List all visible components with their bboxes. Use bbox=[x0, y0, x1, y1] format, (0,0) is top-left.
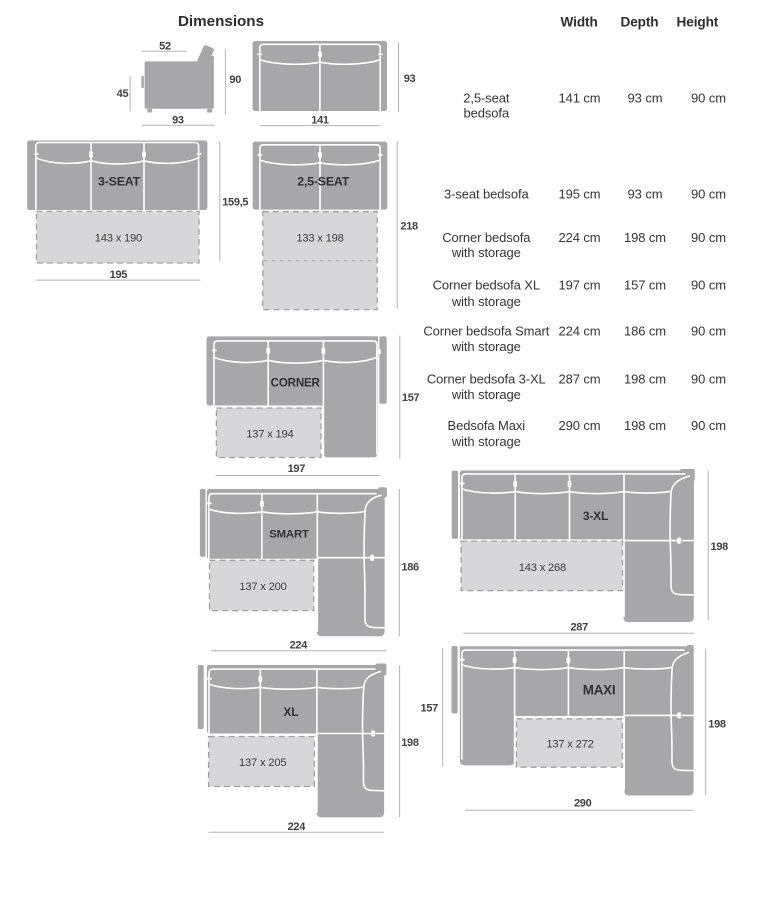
svg-text:290: 290 bbox=[574, 798, 592, 810]
svg-text:90 cm: 90 cm bbox=[691, 230, 726, 245]
svg-text:2,5-SEAT: 2,5-SEAT bbox=[297, 175, 350, 189]
svg-text:90 cm: 90 cm bbox=[691, 323, 726, 338]
svg-text:45: 45 bbox=[117, 88, 129, 100]
svg-text:CORNER: CORNER bbox=[271, 377, 321, 390]
svg-text:93 cm: 93 cm bbox=[628, 187, 663, 202]
svg-text:Bedsofa Maxi: Bedsofa Maxi bbox=[448, 418, 526, 433]
svg-text:Height: Height bbox=[677, 15, 719, 30]
svg-text:3-XL: 3-XL bbox=[583, 509, 608, 523]
svg-text:198 cm: 198 cm bbox=[624, 418, 666, 433]
svg-text:93 cm: 93 cm bbox=[628, 91, 663, 106]
svg-text:141 cm: 141 cm bbox=[558, 91, 600, 106]
svg-text:bedsofa: bedsofa bbox=[464, 106, 510, 121]
svg-text:198: 198 bbox=[708, 719, 726, 731]
svg-text:195 cm: 195 cm bbox=[558, 187, 600, 202]
svg-text:Corner bedsofa XL: Corner bedsofa XL bbox=[433, 278, 540, 293]
svg-text:224: 224 bbox=[290, 639, 309, 651]
svg-text:218: 218 bbox=[400, 220, 418, 232]
svg-text:with storage: with storage bbox=[451, 339, 521, 354]
svg-text:3-seat bedsofa: 3-seat bedsofa bbox=[444, 187, 529, 202]
svg-text:195: 195 bbox=[110, 269, 128, 281]
svg-text:90 cm: 90 cm bbox=[691, 187, 726, 202]
svg-text:Corner bedsofa: Corner bedsofa bbox=[442, 230, 531, 245]
svg-text:with storage: with storage bbox=[451, 387, 521, 402]
svg-text:224 cm: 224 cm bbox=[558, 230, 600, 245]
svg-text:SMART: SMART bbox=[269, 529, 309, 541]
svg-text:Corner bedsofa Smart: Corner bedsofa Smart bbox=[423, 323, 549, 338]
svg-text:137 x 200: 137 x 200 bbox=[239, 581, 286, 593]
svg-text:186: 186 bbox=[401, 561, 419, 573]
svg-text:133 x 198: 133 x 198 bbox=[296, 233, 343, 245]
svg-text:287 cm: 287 cm bbox=[558, 371, 600, 386]
svg-text:MAXI: MAXI bbox=[583, 683, 616, 698]
svg-text:90 cm: 90 cm bbox=[691, 91, 726, 106]
svg-text:Depth: Depth bbox=[620, 15, 658, 30]
svg-text:with storage: with storage bbox=[451, 245, 521, 260]
svg-text:198: 198 bbox=[401, 737, 419, 749]
svg-text:3-SEAT: 3-SEAT bbox=[98, 174, 141, 188]
svg-text:with storage: with storage bbox=[451, 434, 521, 449]
svg-text:198 cm: 198 cm bbox=[624, 371, 666, 386]
svg-text:157 cm: 157 cm bbox=[624, 278, 666, 293]
svg-text:Width: Width bbox=[561, 15, 598, 30]
svg-text:287: 287 bbox=[570, 621, 588, 633]
svg-text:143 x 268: 143 x 268 bbox=[519, 562, 566, 574]
svg-text:93: 93 bbox=[404, 73, 416, 85]
svg-text:Corner bedsofa 3-XL: Corner bedsofa 3-XL bbox=[427, 371, 546, 386]
svg-text:143 x 190: 143 x 190 bbox=[95, 233, 142, 245]
svg-text:197 cm: 197 cm bbox=[558, 278, 600, 293]
svg-text:137 x 272: 137 x 272 bbox=[546, 739, 593, 751]
svg-text:2,5-seat: 2,5-seat bbox=[463, 91, 510, 106]
svg-text:137 x 205: 137 x 205 bbox=[239, 757, 286, 769]
svg-text:90 cm: 90 cm bbox=[691, 278, 726, 293]
svg-text:197: 197 bbox=[288, 463, 306, 475]
svg-text:90 cm: 90 cm bbox=[691, 371, 726, 386]
svg-text:157: 157 bbox=[421, 702, 439, 714]
svg-text:224: 224 bbox=[288, 821, 307, 833]
svg-text:141: 141 bbox=[311, 115, 329, 127]
svg-text:224 cm: 224 cm bbox=[558, 323, 600, 338]
svg-text:157: 157 bbox=[402, 392, 420, 404]
svg-text:137 x 194: 137 x 194 bbox=[246, 429, 293, 441]
svg-text:198: 198 bbox=[711, 541, 729, 553]
svg-text:290 cm: 290 cm bbox=[558, 418, 600, 433]
svg-text:90 cm: 90 cm bbox=[691, 418, 726, 433]
svg-text:with storage: with storage bbox=[451, 294, 521, 309]
svg-text:Dimensions: Dimensions bbox=[178, 13, 264, 30]
svg-text:90: 90 bbox=[229, 74, 241, 86]
svg-text:186 cm: 186 cm bbox=[624, 323, 666, 338]
svg-text:198 cm: 198 cm bbox=[624, 230, 666, 245]
svg-text:159,5: 159,5 bbox=[222, 196, 248, 208]
svg-text:XL: XL bbox=[283, 705, 298, 719]
svg-text:52: 52 bbox=[159, 40, 171, 52]
